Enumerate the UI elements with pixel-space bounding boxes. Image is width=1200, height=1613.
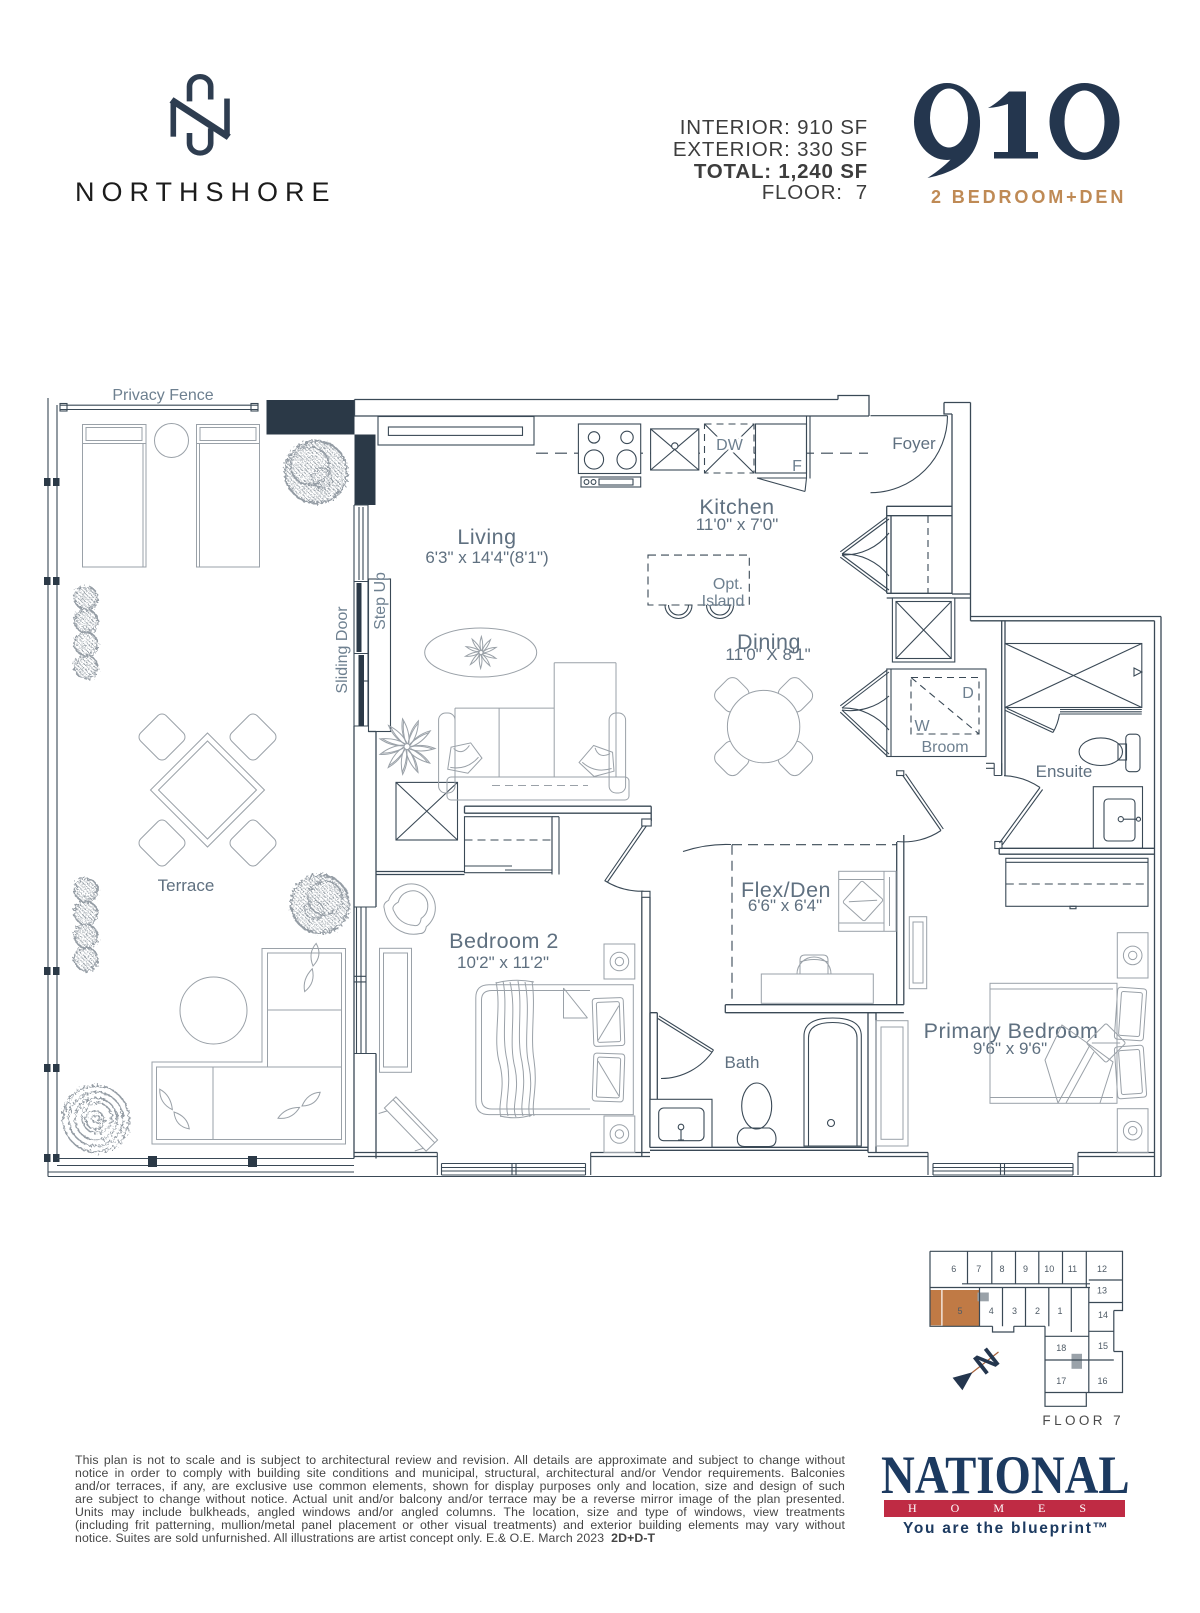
svg-text:Bath: Bath	[725, 1053, 760, 1072]
svg-text:12: 12	[1097, 1264, 1107, 1274]
svg-text:Opt.: Opt.	[713, 576, 743, 593]
svg-text:13: 13	[1097, 1286, 1107, 1296]
svg-text:D: D	[962, 685, 974, 702]
svg-text:W: W	[914, 718, 930, 735]
svg-text:9: 9	[1023, 1264, 1028, 1274]
svg-text:16: 16	[1097, 1376, 1107, 1386]
svg-text:11'0" x 7'0": 11'0" x 7'0"	[696, 515, 779, 534]
svg-text:7: 7	[976, 1264, 981, 1274]
svg-text:10: 10	[1044, 1264, 1054, 1274]
svg-text:Sliding Door: Sliding Door	[334, 606, 351, 694]
svg-text:DW: DW	[716, 437, 744, 454]
svg-text:11: 11	[1068, 1264, 1077, 1274]
svg-text:6: 6	[951, 1264, 956, 1274]
svg-text:8: 8	[999, 1264, 1004, 1274]
svg-text:5: 5	[957, 1306, 962, 1316]
svg-text:F: F	[792, 458, 802, 475]
svg-text:Living: Living	[457, 525, 516, 549]
svg-text:9'6" x 9'6": 9'6" x 9'6"	[973, 1039, 1047, 1058]
svg-text:10'2" x 11'2": 10'2" x 11'2"	[457, 953, 549, 972]
svg-text:4: 4	[989, 1306, 994, 1316]
svg-text:Bedroom 2: Bedroom 2	[449, 929, 559, 953]
svg-text:11'0" X 8'1": 11'0" X 8'1"	[725, 645, 810, 664]
svg-text:N: N	[968, 1342, 1005, 1381]
svg-text:FLOOR 7: FLOOR 7	[1042, 1413, 1124, 1428]
svg-text:Step Up: Step Up	[372, 572, 389, 630]
svg-text:Terrace: Terrace	[158, 876, 215, 895]
svg-text:14: 14	[1098, 1310, 1108, 1320]
svg-text:6'3" x 14'4"(8'1"): 6'3" x 14'4"(8'1")	[425, 548, 548, 567]
svg-text:Broom: Broom	[921, 739, 968, 756]
svg-text:17: 17	[1056, 1376, 1066, 1386]
svg-text:Privacy Fence: Privacy Fence	[112, 387, 213, 404]
svg-text:Foyer: Foyer	[892, 434, 936, 453]
svg-text:1: 1	[1057, 1306, 1062, 1316]
svg-text:6'6" x 6'4": 6'6" x 6'4"	[748, 896, 822, 915]
svg-text:Island: Island	[702, 593, 745, 610]
svg-text:3: 3	[1012, 1306, 1017, 1316]
svg-text:Ensuite: Ensuite	[1036, 762, 1093, 781]
svg-text:18: 18	[1056, 1343, 1066, 1353]
svg-text:2: 2	[1035, 1306, 1040, 1316]
svg-text:15: 15	[1098, 1341, 1108, 1351]
